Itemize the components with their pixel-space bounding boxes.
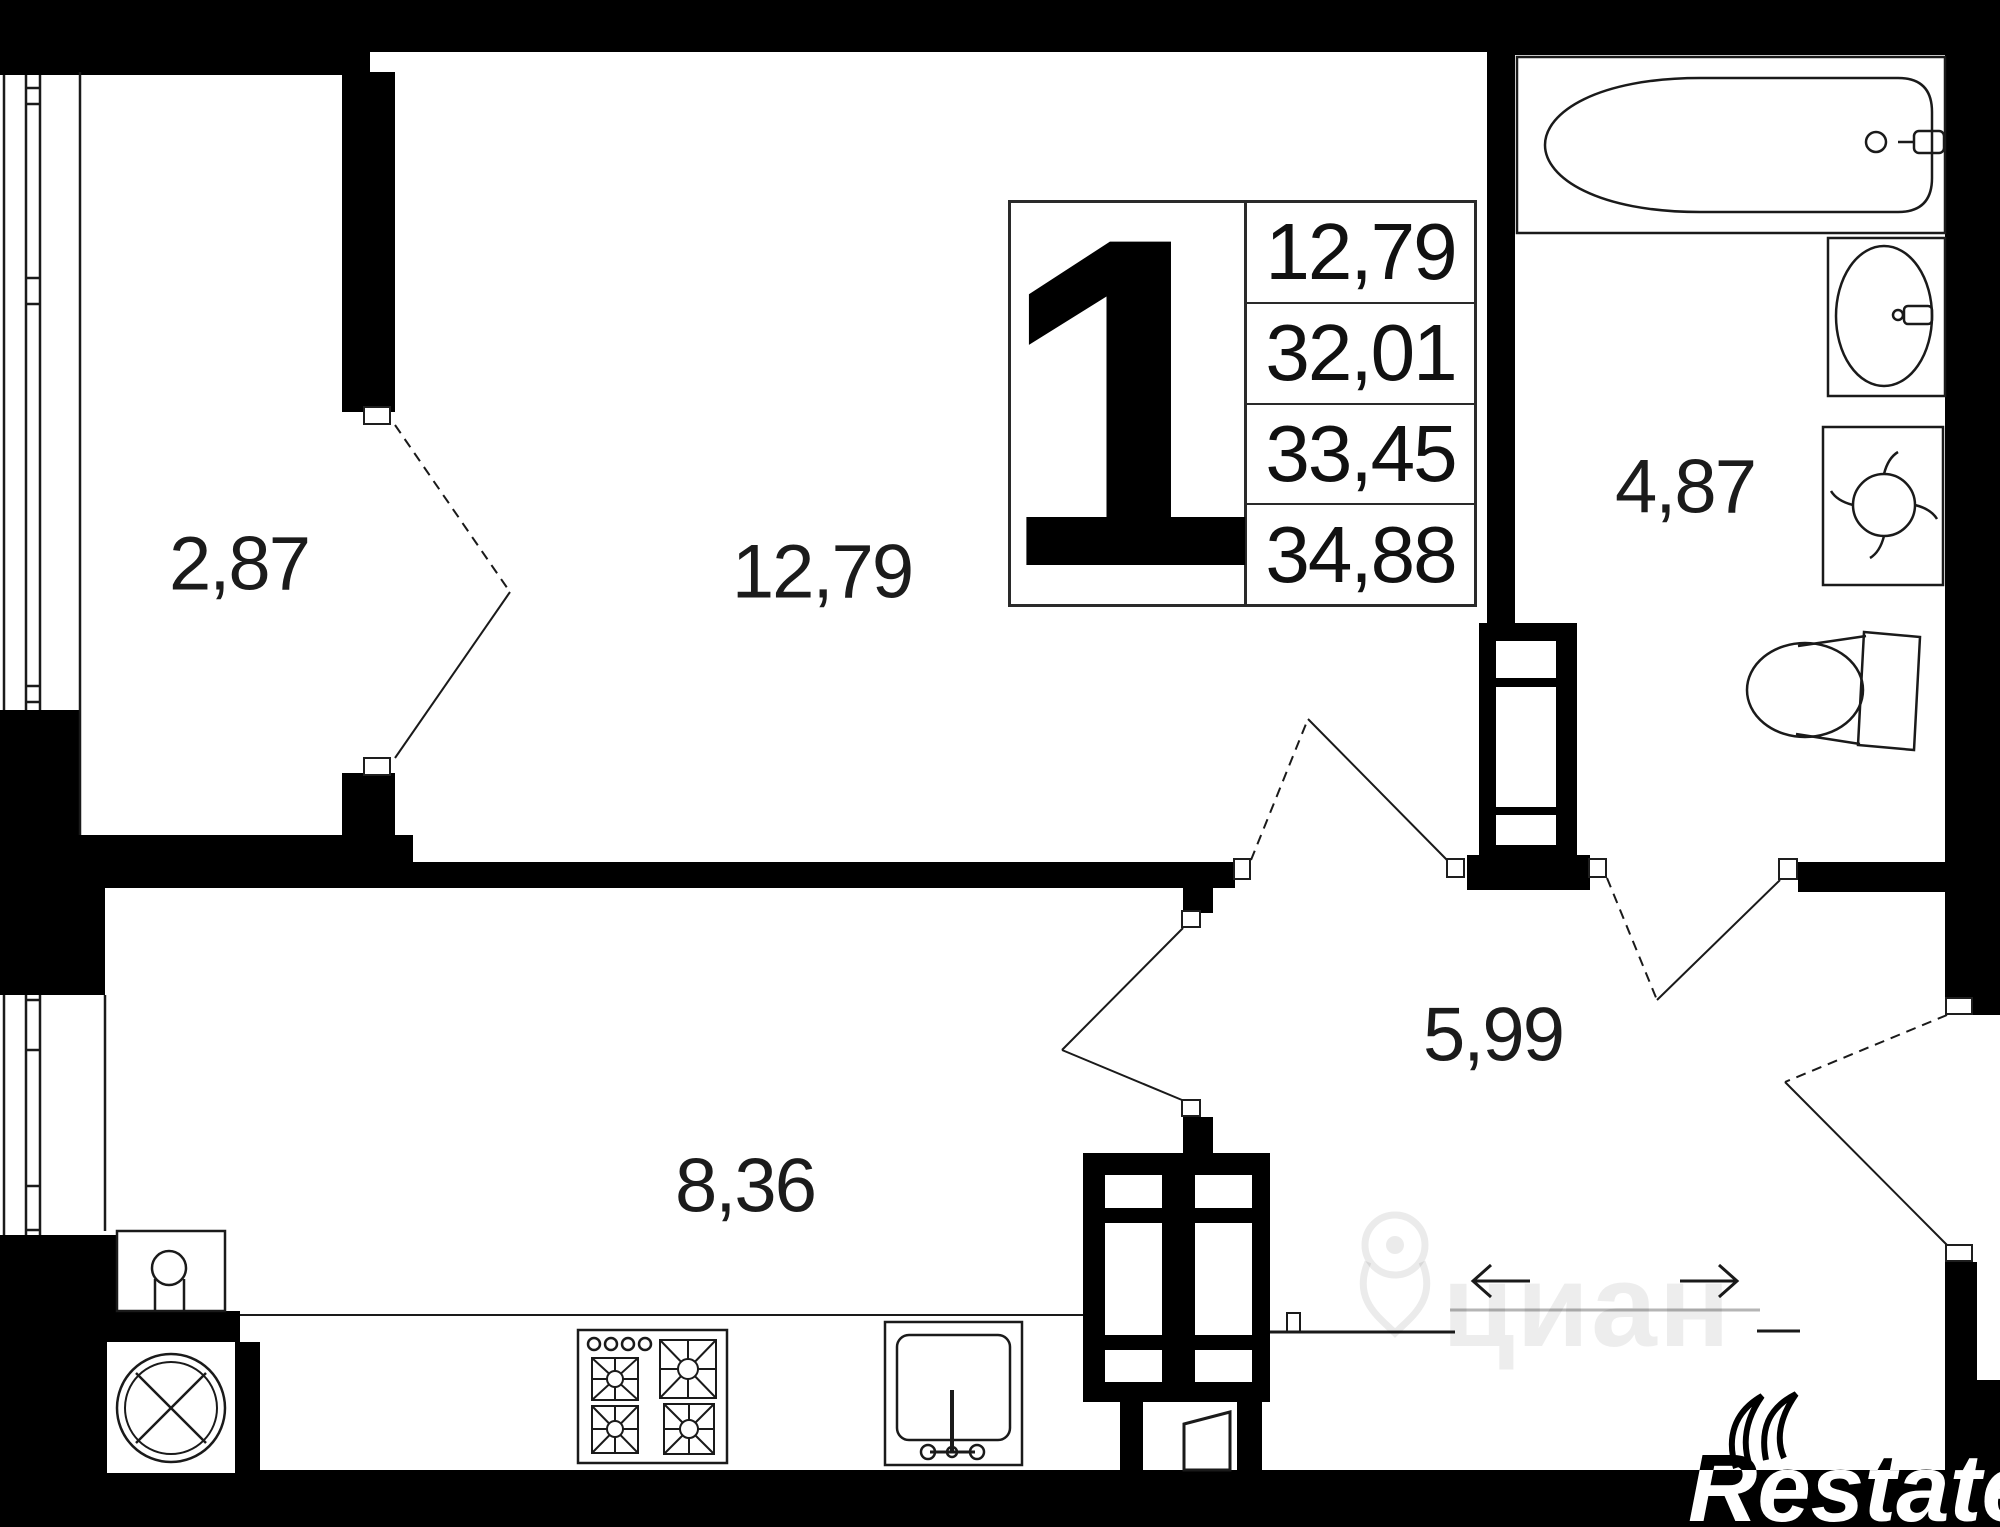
kitchen-sink-icon	[885, 1322, 1022, 1465]
loggia-window-icon	[4, 72, 80, 835]
unit-info-card: 1 12,79 32,01 33,45 34,88	[1008, 200, 1477, 607]
hallway-area-label: 5,99	[1423, 992, 1563, 1079]
entrance-door-opening	[1785, 1015, 1947, 1245]
unit-area-row: 33,45	[1247, 403, 1474, 504]
washing-machine-icon	[1823, 427, 1943, 585]
portal-watermark-pin-icon	[1363, 1215, 1427, 1333]
living-hall-opening	[1251, 719, 1447, 860]
kitchen-area-label: 8,36	[675, 1143, 815, 1230]
stove-icon	[578, 1330, 727, 1463]
unit-area-row: 32,01	[1247, 302, 1474, 403]
kitchen-window-icon	[4, 995, 105, 1235]
bathtub-icon	[1517, 57, 1945, 233]
toilet-icon	[1747, 632, 1920, 750]
unit-area-row: 34,88	[1247, 503, 1474, 604]
unit-areas-column: 12,79 32,01 33,45 34,88	[1247, 203, 1474, 604]
unit-number-cell: 1	[1011, 203, 1247, 604]
ventilation-duct-icon	[107, 1342, 235, 1473]
kitchen-hall-opening	[1062, 928, 1183, 1100]
unit-area-row: 12,79	[1247, 203, 1474, 302]
living-area-label: 12,79	[732, 529, 912, 616]
bathroom-sink-icon	[1828, 238, 1945, 396]
kitchen-shaft-door-leaf	[1184, 1412, 1230, 1470]
loggia-door-opening	[395, 425, 510, 758]
radiator-icon	[117, 1231, 225, 1311]
portal-watermark-text: циан	[1442, 1238, 1732, 1374]
bathroom-area-label: 4,87	[1615, 444, 1755, 531]
floor-plan: 2,87 12,79 4,87 5,99 8,36 1 12,79 32,01 …	[0, 0, 2000, 1527]
loggia-area-label: 2,87	[169, 521, 309, 608]
unit-number: 1	[997, 220, 1258, 587]
bathroom-door-opening	[1607, 878, 1780, 1000]
